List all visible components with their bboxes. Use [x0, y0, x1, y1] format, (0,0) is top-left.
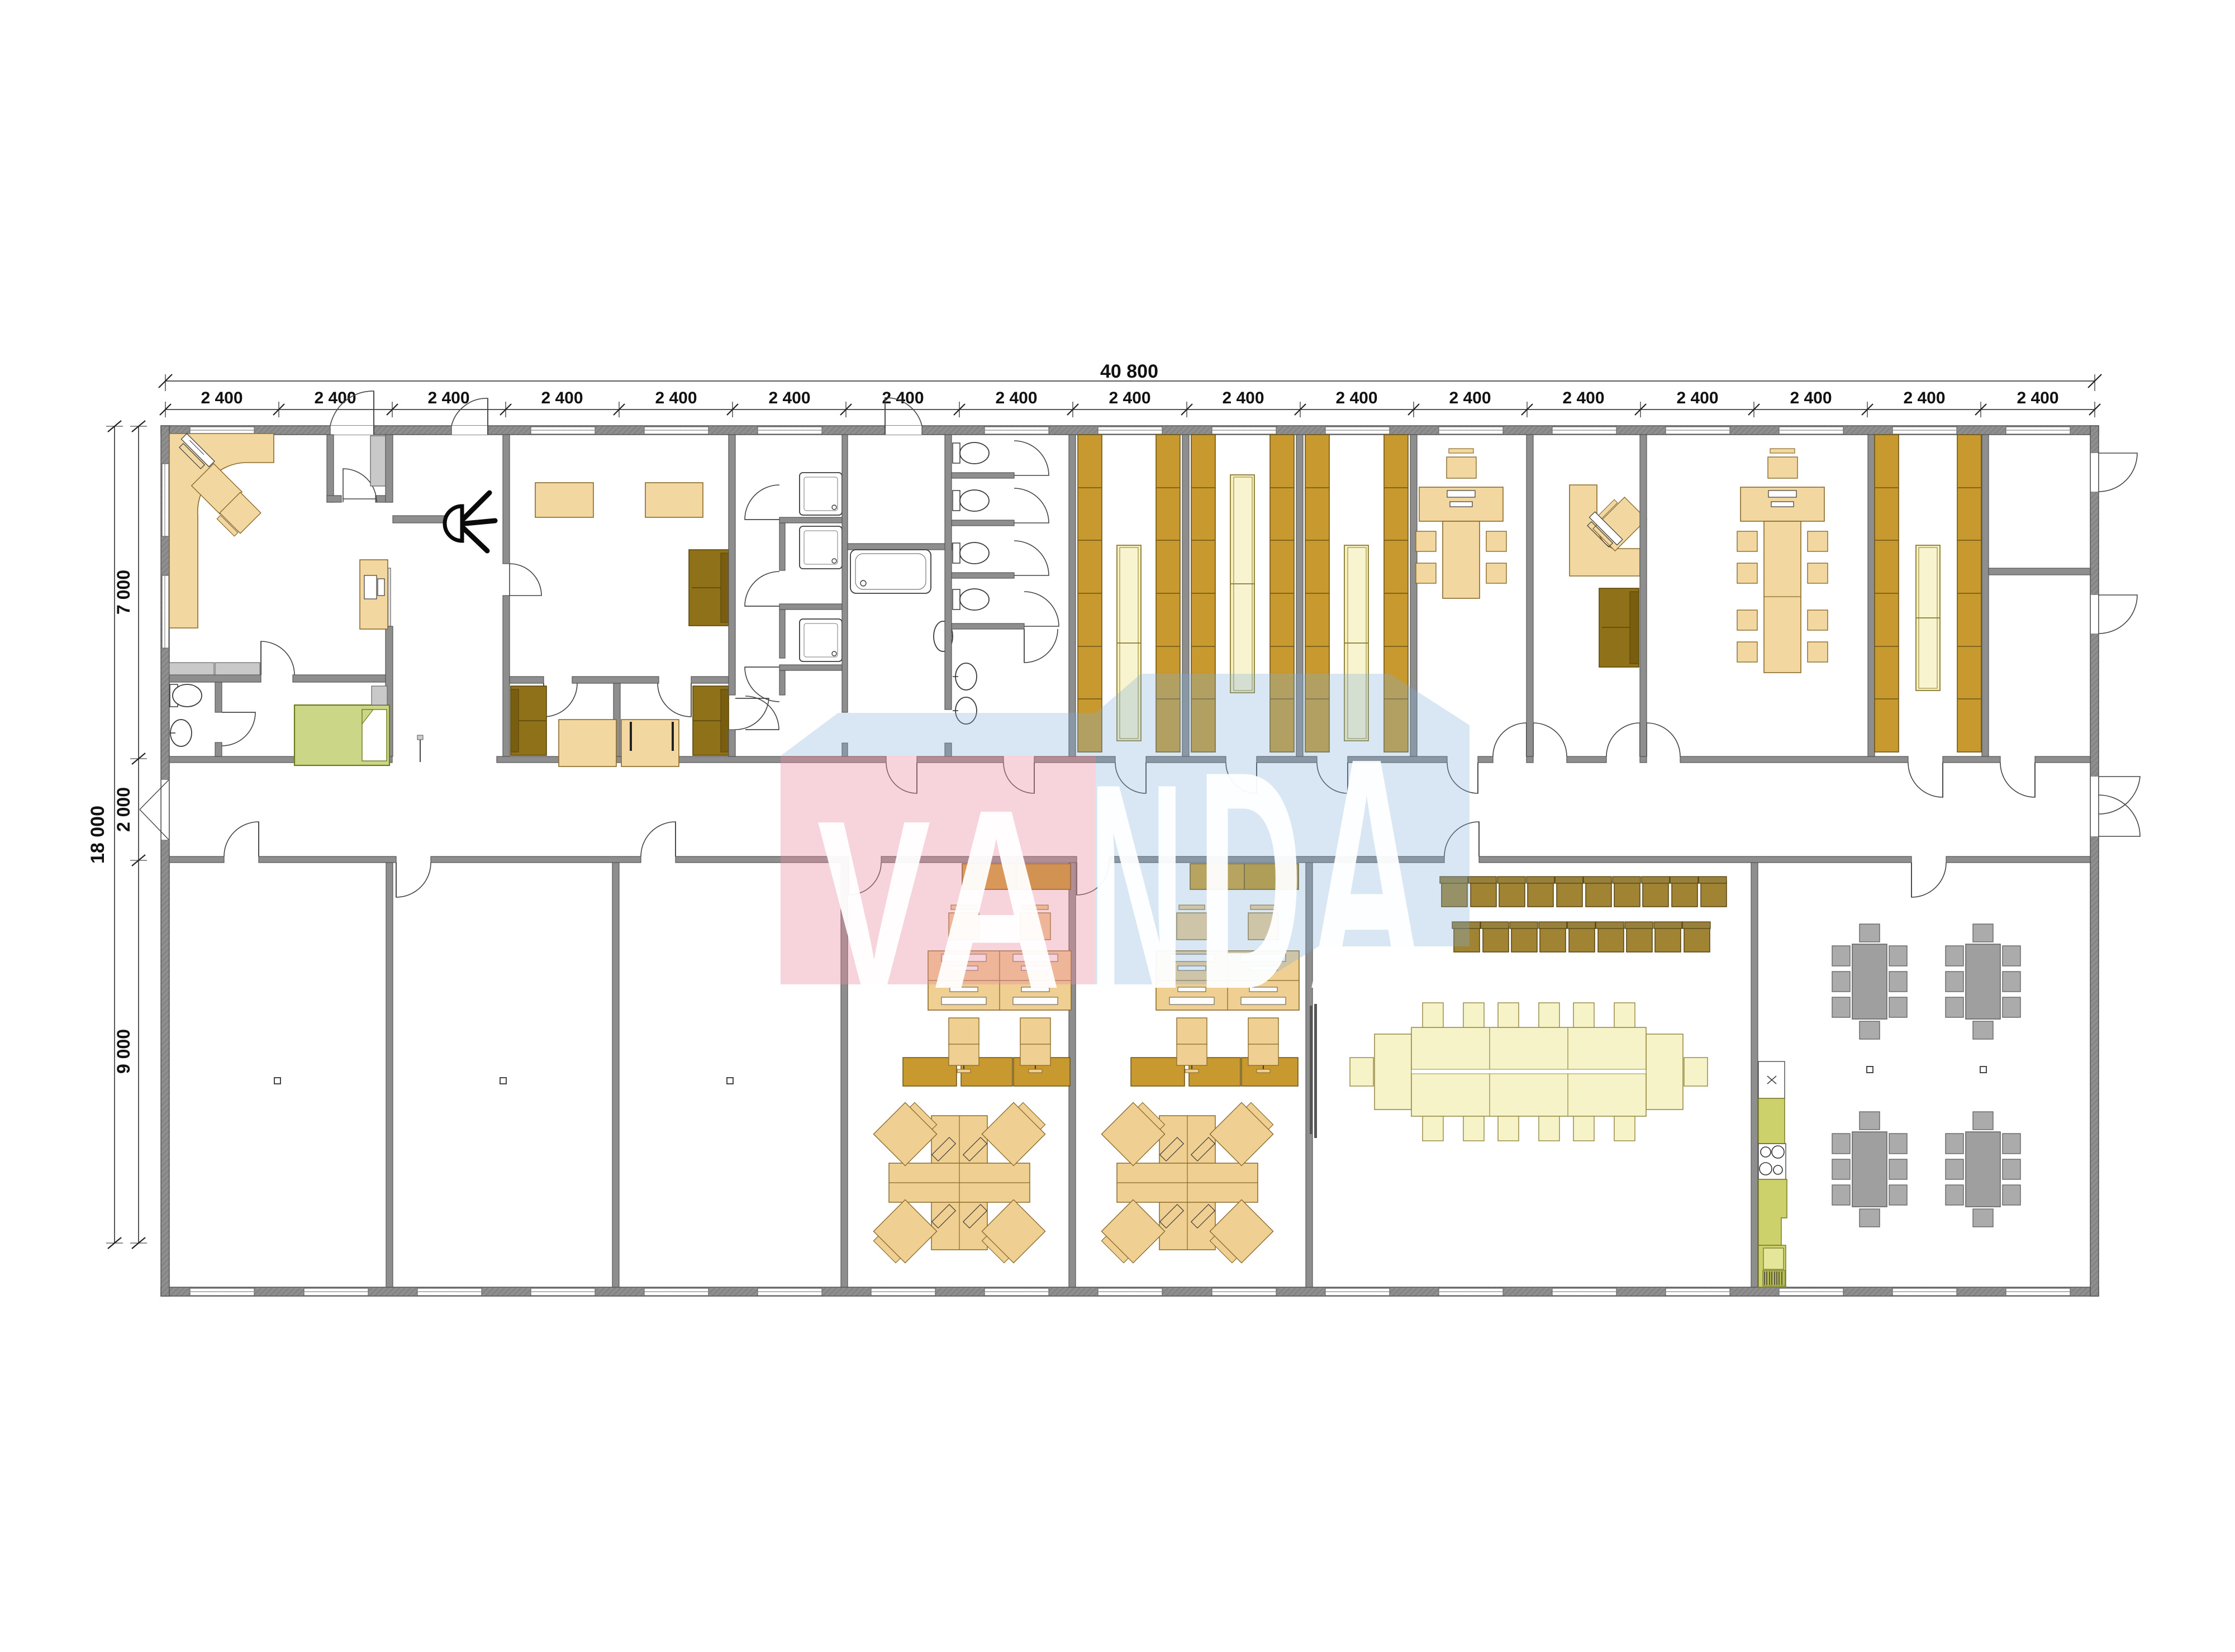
- svg-text:9 000: 9 000: [113, 1029, 134, 1074]
- svg-text:2 000: 2 000: [113, 787, 134, 832]
- svg-text:2 400: 2 400: [201, 389, 242, 407]
- svg-text:2 400: 2 400: [1676, 389, 1718, 407]
- svg-text:2 400: 2 400: [1790, 389, 1832, 407]
- svg-text:2 400: 2 400: [1449, 389, 1491, 407]
- svg-text:2 400: 2 400: [1335, 389, 1377, 407]
- svg-text:2 400: 2 400: [541, 389, 583, 407]
- svg-text:D: D: [1197, 707, 1303, 1054]
- svg-text:2 400: 2 400: [768, 389, 810, 407]
- svg-text:2 400: 2 400: [1562, 389, 1604, 407]
- svg-text:A: A: [1307, 690, 1426, 1058]
- svg-text:2 400: 2 400: [2017, 389, 2058, 407]
- svg-text:2 400: 2 400: [427, 389, 469, 407]
- svg-text:V: V: [817, 771, 931, 1039]
- svg-text:2 400: 2 400: [1903, 389, 1945, 407]
- svg-text:40 800: 40 800: [1100, 361, 1158, 382]
- svg-text:18 000: 18 000: [87, 806, 108, 864]
- svg-text:7 000: 7 000: [113, 570, 134, 615]
- svg-text:2 400: 2 400: [995, 389, 1037, 407]
- svg-text:2 400: 2 400: [1109, 389, 1150, 407]
- svg-text:2 400: 2 400: [655, 389, 697, 407]
- svg-text:N: N: [1088, 723, 1185, 1050]
- svg-text:2 400: 2 400: [1222, 389, 1264, 407]
- svg-text:A: A: [931, 756, 1062, 1042]
